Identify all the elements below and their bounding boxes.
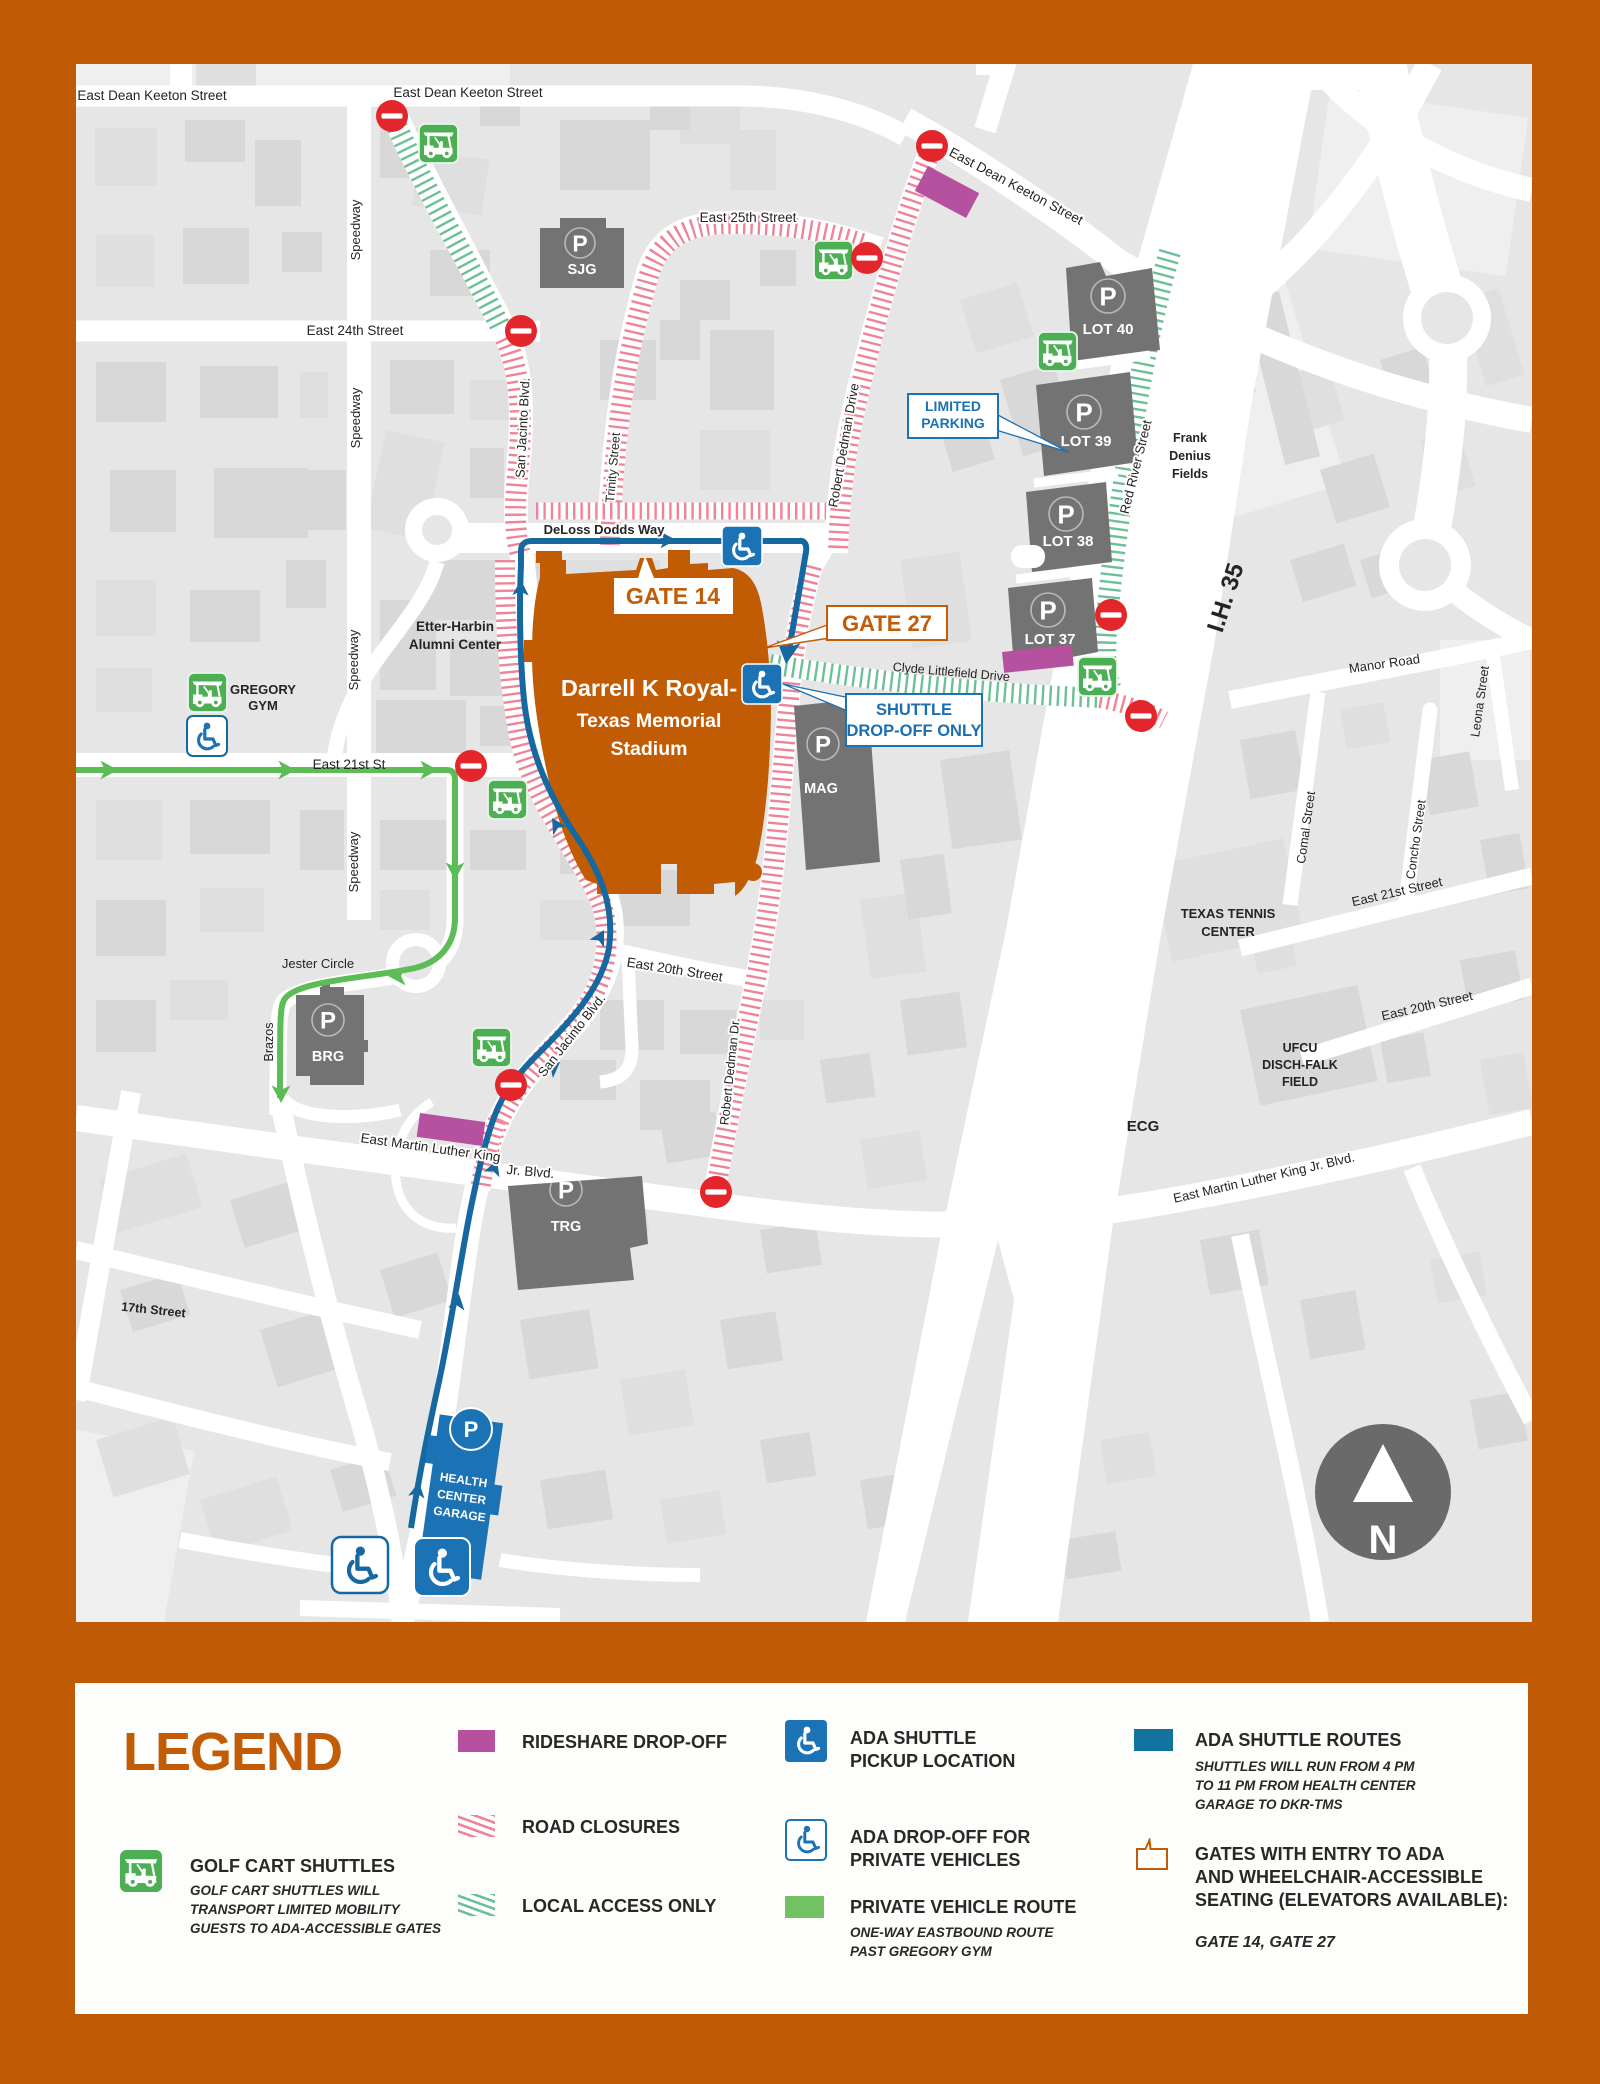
svg-text:Texas Memorial: Texas Memorial xyxy=(577,710,722,732)
svg-text:Stadium: Stadium xyxy=(611,738,688,760)
svg-text:East Dean Keeton Street: East Dean Keeton Street xyxy=(393,85,543,100)
svg-text:Darrell K Royal-: Darrell K Royal- xyxy=(561,675,737,701)
svg-text:TRG: TRG xyxy=(551,1219,582,1235)
svg-text:LOT 40: LOT 40 xyxy=(1083,321,1134,338)
svg-text:Speedway: Speedway xyxy=(348,199,363,260)
svg-text:Etter-Harbin: Etter-Harbin xyxy=(416,619,494,634)
svg-text:GATE 14: GATE 14 xyxy=(626,583,720,609)
svg-text:P: P xyxy=(1099,281,1116,311)
svg-text:Speedway: Speedway xyxy=(346,831,361,892)
svg-text:DISCH-FALK: DISCH-FALK xyxy=(1262,1058,1338,1072)
svg-text:CENTER: CENTER xyxy=(1201,924,1255,939)
svg-text:East 24th Street: East 24th Street xyxy=(307,323,404,338)
svg-text:TEXAS TENNIS: TEXAS TENNIS xyxy=(1181,906,1276,921)
svg-text:UFCU: UFCU xyxy=(1283,1041,1318,1055)
svg-text:P: P xyxy=(464,1417,479,1442)
svg-text:PARKING: PARKING xyxy=(921,415,985,431)
svg-text:GATE 27: GATE 27 xyxy=(842,611,932,636)
svg-text:FIELD: FIELD xyxy=(1282,1075,1318,1089)
svg-text:GREGORY: GREGORY xyxy=(230,682,296,697)
svg-text:P: P xyxy=(320,1008,336,1035)
svg-text:Fields: Fields xyxy=(1172,467,1208,481)
svg-text:East Dean Keeton Street: East Dean Keeton Street xyxy=(77,88,227,103)
svg-text:MAG: MAG xyxy=(804,781,838,797)
svg-text:Alumni Center: Alumni Center xyxy=(409,637,502,652)
svg-text:Denius: Denius xyxy=(1169,449,1211,463)
svg-text:ECG: ECG xyxy=(1127,1118,1160,1135)
svg-text:P: P xyxy=(815,732,831,759)
svg-text:Frank: Frank xyxy=(1173,431,1207,445)
svg-text:P: P xyxy=(1075,397,1092,427)
svg-text:Jester Circle: Jester Circle xyxy=(282,956,354,971)
svg-text:SHUTTLE: SHUTTLE xyxy=(876,701,952,719)
svg-text:P: P xyxy=(572,230,587,256)
svg-text:P: P xyxy=(1057,499,1074,529)
svg-text:LIMITED: LIMITED xyxy=(925,398,981,414)
svg-text:Speedway: Speedway xyxy=(348,387,363,448)
svg-text:LOT 39: LOT 39 xyxy=(1061,433,1112,450)
svg-text:DROP-OFF ONLY: DROP-OFF ONLY xyxy=(846,722,981,740)
svg-text:Speedway: Speedway xyxy=(346,629,361,690)
svg-text:DeLoss Dodds Way: DeLoss Dodds Way xyxy=(544,522,666,537)
svg-text:East 25th Street: East 25th Street xyxy=(700,210,797,225)
svg-text:N: N xyxy=(1369,1518,1398,1562)
svg-text:GYM: GYM xyxy=(248,698,278,713)
svg-text:P: P xyxy=(1039,595,1056,625)
svg-text:P: P xyxy=(558,1178,574,1205)
svg-text:Brazos: Brazos xyxy=(262,1023,276,1062)
svg-text:LOT 38: LOT 38 xyxy=(1043,533,1094,550)
svg-text:East 21st St: East 21st St xyxy=(313,757,386,772)
svg-text:SJG: SJG xyxy=(567,262,596,278)
svg-text:BRG: BRG xyxy=(312,1049,344,1065)
